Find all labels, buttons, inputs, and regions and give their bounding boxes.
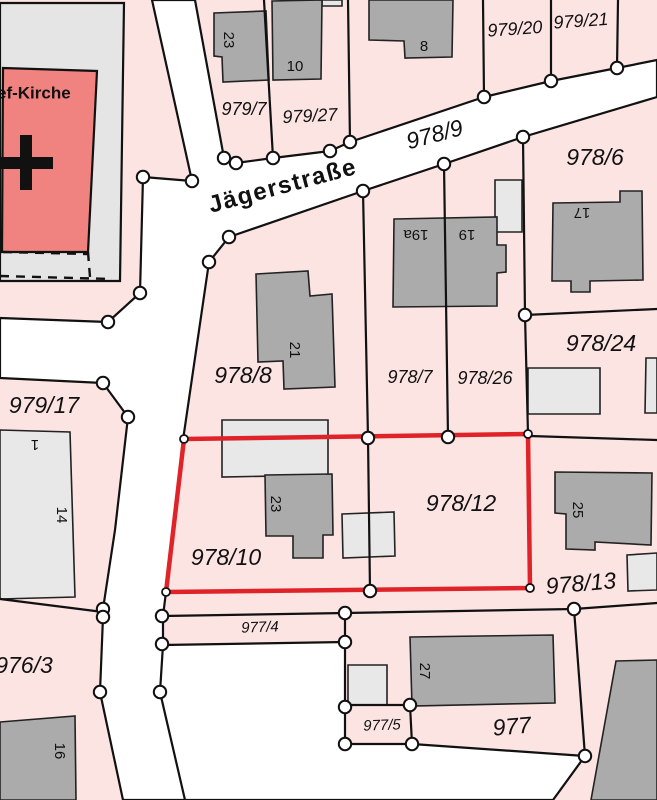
parcel-label-979-7: 979/7 — [221, 99, 267, 119]
parcel-label-978-24: 978/24 — [566, 330, 636, 356]
garage-behind-23 — [222, 420, 328, 477]
house-number-19: 19 — [459, 226, 476, 243]
parcel-label-978-10: 978/10 — [191, 544, 262, 570]
parcel-label-979-21: 979/21 — [553, 9, 609, 33]
garage-978-13 — [627, 553, 657, 591]
house-number-16: 16 — [51, 743, 68, 760]
parcel-label-976-3: 976/3 — [0, 652, 53, 678]
parcel-label-977: 977 — [492, 711, 534, 740]
shed-near-19 — [495, 180, 522, 232]
parcel-label-978-7: 978/7 — [387, 367, 433, 387]
church-name-label: ef-Kirche — [0, 83, 71, 102]
house-number-17: 17 — [574, 204, 591, 221]
house-number-21: 21 — [286, 342, 303, 359]
house-number-25: 25 — [569, 502, 586, 519]
parcel-label-979-17: 979/17 — [9, 392, 81, 418]
building-right-edge — [645, 358, 657, 413]
house-number-1: 1 — [31, 436, 39, 453]
house-number-23: 23 — [267, 496, 284, 513]
map-canvas: 979/7 979/27 979/20 979/21 978/9 978/6 9… — [0, 0, 657, 800]
parcel-label-977-4: 977/4 — [241, 618, 279, 636]
house-number-8: 8 — [420, 38, 428, 55]
parcel-label-977-5: 977/5 — [363, 716, 402, 734]
parcel-label-979-27: 979/27 — [282, 104, 339, 127]
cadastral-map: 979/7 979/27 979/20 979/21 978/9 978/6 9… — [0, 0, 657, 800]
house-number-14: 14 — [53, 507, 70, 524]
house-number-23-top: 23 — [220, 32, 237, 49]
house-number-27: 27 — [416, 663, 433, 680]
parcel-label-979-20: 979/20 — [487, 17, 543, 41]
parcel-label-978-26: 978/26 — [457, 368, 513, 388]
parcel-label-978-6: 978/6 — [566, 144, 624, 170]
shed-top — [322, 0, 342, 6]
garage-978-24 — [528, 368, 600, 414]
house-number-19a: 19a — [403, 226, 429, 243]
parcel-label-978-12: 978/12 — [426, 490, 497, 516]
building-17 — [552, 191, 643, 292]
house-number-10: 10 — [287, 58, 304, 75]
garage-977 — [348, 665, 387, 705]
parcel-label-978-8: 978/8 — [214, 362, 272, 388]
